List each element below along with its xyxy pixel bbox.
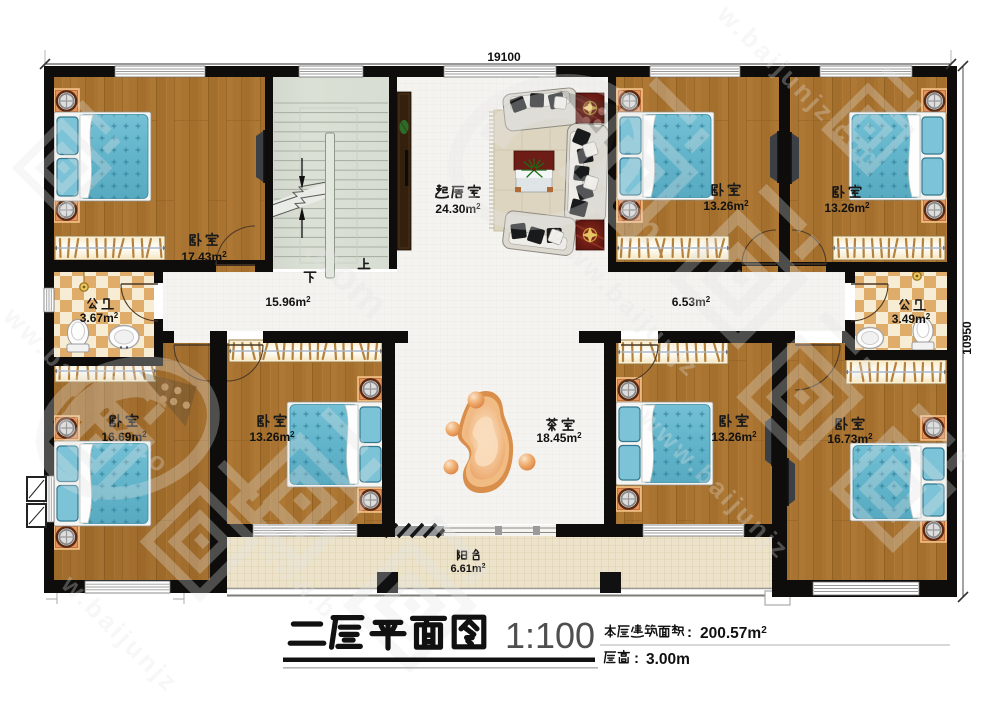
svg-text::: :	[687, 624, 692, 641]
svg-text:3.67m2: 3.67m2	[80, 311, 119, 325]
svg-text:3.00m: 3.00m	[646, 651, 690, 668]
svg-text:13.26m2: 13.26m2	[249, 430, 295, 444]
svg-text:15.96m2: 15.96m2	[265, 295, 311, 309]
svg-text:1:100: 1:100	[505, 615, 595, 656]
svg-text:3.49m2: 3.49m2	[892, 312, 931, 326]
svg-text:10950: 10950	[960, 321, 974, 355]
svg-text:13.26m2: 13.26m2	[703, 199, 749, 213]
svg-text:16.73m2: 16.73m2	[827, 432, 873, 446]
svg-text::: :	[634, 650, 639, 667]
svg-text:17.43m2: 17.43m2	[181, 250, 227, 264]
svg-text:18.45m2: 18.45m2	[536, 431, 582, 445]
svg-text:19100: 19100	[487, 50, 521, 64]
svg-text:13.26m2: 13.26m2	[711, 430, 757, 444]
svg-text:200.57m2: 200.57m2	[700, 625, 767, 642]
svg-text:13.26m2: 13.26m2	[824, 201, 870, 215]
